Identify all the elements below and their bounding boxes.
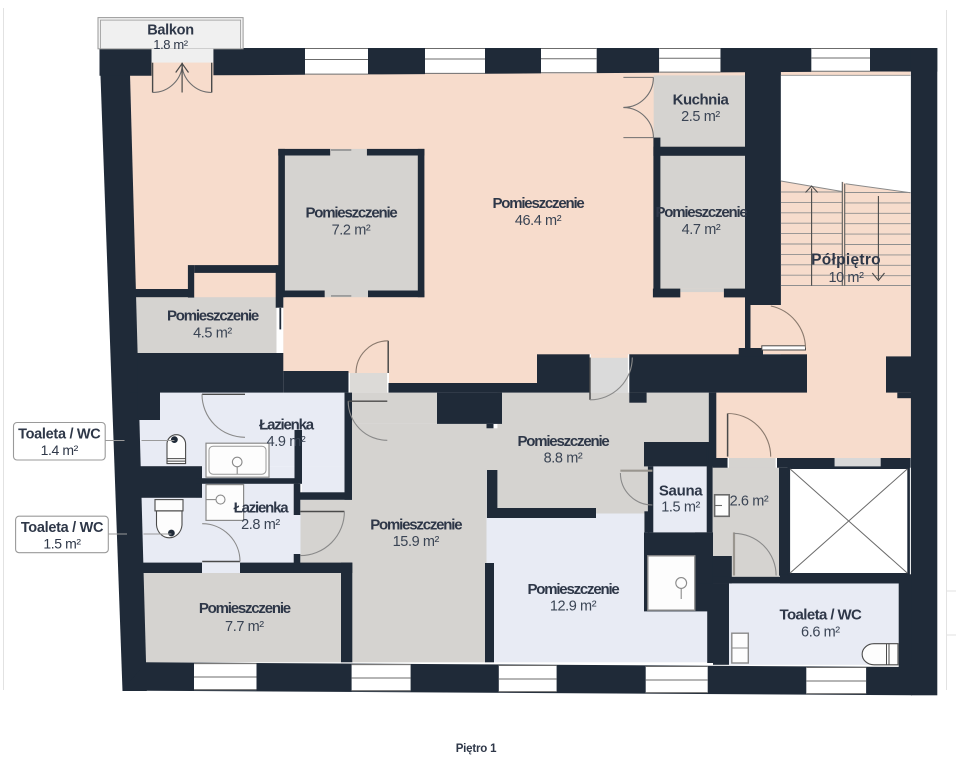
svg-text:1.5 m²: 1.5 m²: [43, 536, 81, 552]
svg-text:Pomieszczenie: Pomieszczenie: [527, 581, 619, 598]
svg-text:2.5 m²: 2.5 m²: [681, 109, 720, 125]
svg-text:6.6 m²: 6.6 m²: [801, 625, 840, 641]
svg-text:12.9 m²: 12.9 m²: [550, 599, 597, 615]
svg-text:7.7 m²: 7.7 m²: [225, 619, 264, 635]
svg-text:2.8 m²: 2.8 m²: [241, 517, 280, 533]
svg-text:4.9 m²: 4.9 m²: [267, 434, 306, 450]
svg-text:4.7 m²: 4.7 m²: [682, 222, 721, 238]
svg-text:Półpiętro: Półpiętro: [811, 252, 881, 269]
svg-text:8.8 m²: 8.8 m²: [544, 451, 583, 467]
svg-text:2.6 m²: 2.6 m²: [730, 494, 769, 510]
svg-text:Pomieszczenie: Pomieszczenie: [655, 204, 747, 221]
svg-text:7.2 m²: 7.2 m²: [332, 223, 371, 239]
svg-text:Pomieszczenie: Pomieszczenie: [167, 308, 259, 325]
svg-text:4.5 m²: 4.5 m²: [193, 326, 232, 342]
svg-text:15.9 m²: 15.9 m²: [393, 534, 440, 550]
svg-text:Łazienka: Łazienka: [259, 417, 315, 434]
svg-text:Toaleta / WC: Toaleta / WC: [21, 520, 104, 536]
svg-text:Pomieszczenie: Pomieszczenie: [370, 517, 462, 534]
svg-text:1.8 m²: 1.8 m²: [153, 37, 189, 52]
svg-text:Sauna: Sauna: [659, 483, 703, 500]
svg-text:Kuchnia: Kuchnia: [673, 92, 730, 109]
svg-text:Pomieszczenie: Pomieszczenie: [517, 433, 609, 450]
svg-text:Toaleta / WC: Toaleta / WC: [780, 607, 862, 624]
svg-text:1.5 m²: 1.5 m²: [661, 500, 700, 516]
svg-text:1.4 m²: 1.4 m²: [41, 442, 79, 458]
svg-text:Piętro 1: Piętro 1: [456, 743, 497, 755]
svg-text:Łazienka: Łazienka: [234, 500, 290, 517]
svg-text:Pomieszczenie: Pomieszczenie: [305, 205, 397, 222]
svg-text:Pomieszczenie: Pomieszczenie: [199, 600, 291, 617]
svg-text:Toaleta / WC: Toaleta / WC: [18, 427, 101, 443]
svg-text:10 m²: 10 m²: [828, 270, 864, 286]
svg-text:46.4 m²: 46.4 m²: [515, 213, 562, 229]
svg-text:Pomieszczenie: Pomieszczenie: [492, 195, 584, 212]
